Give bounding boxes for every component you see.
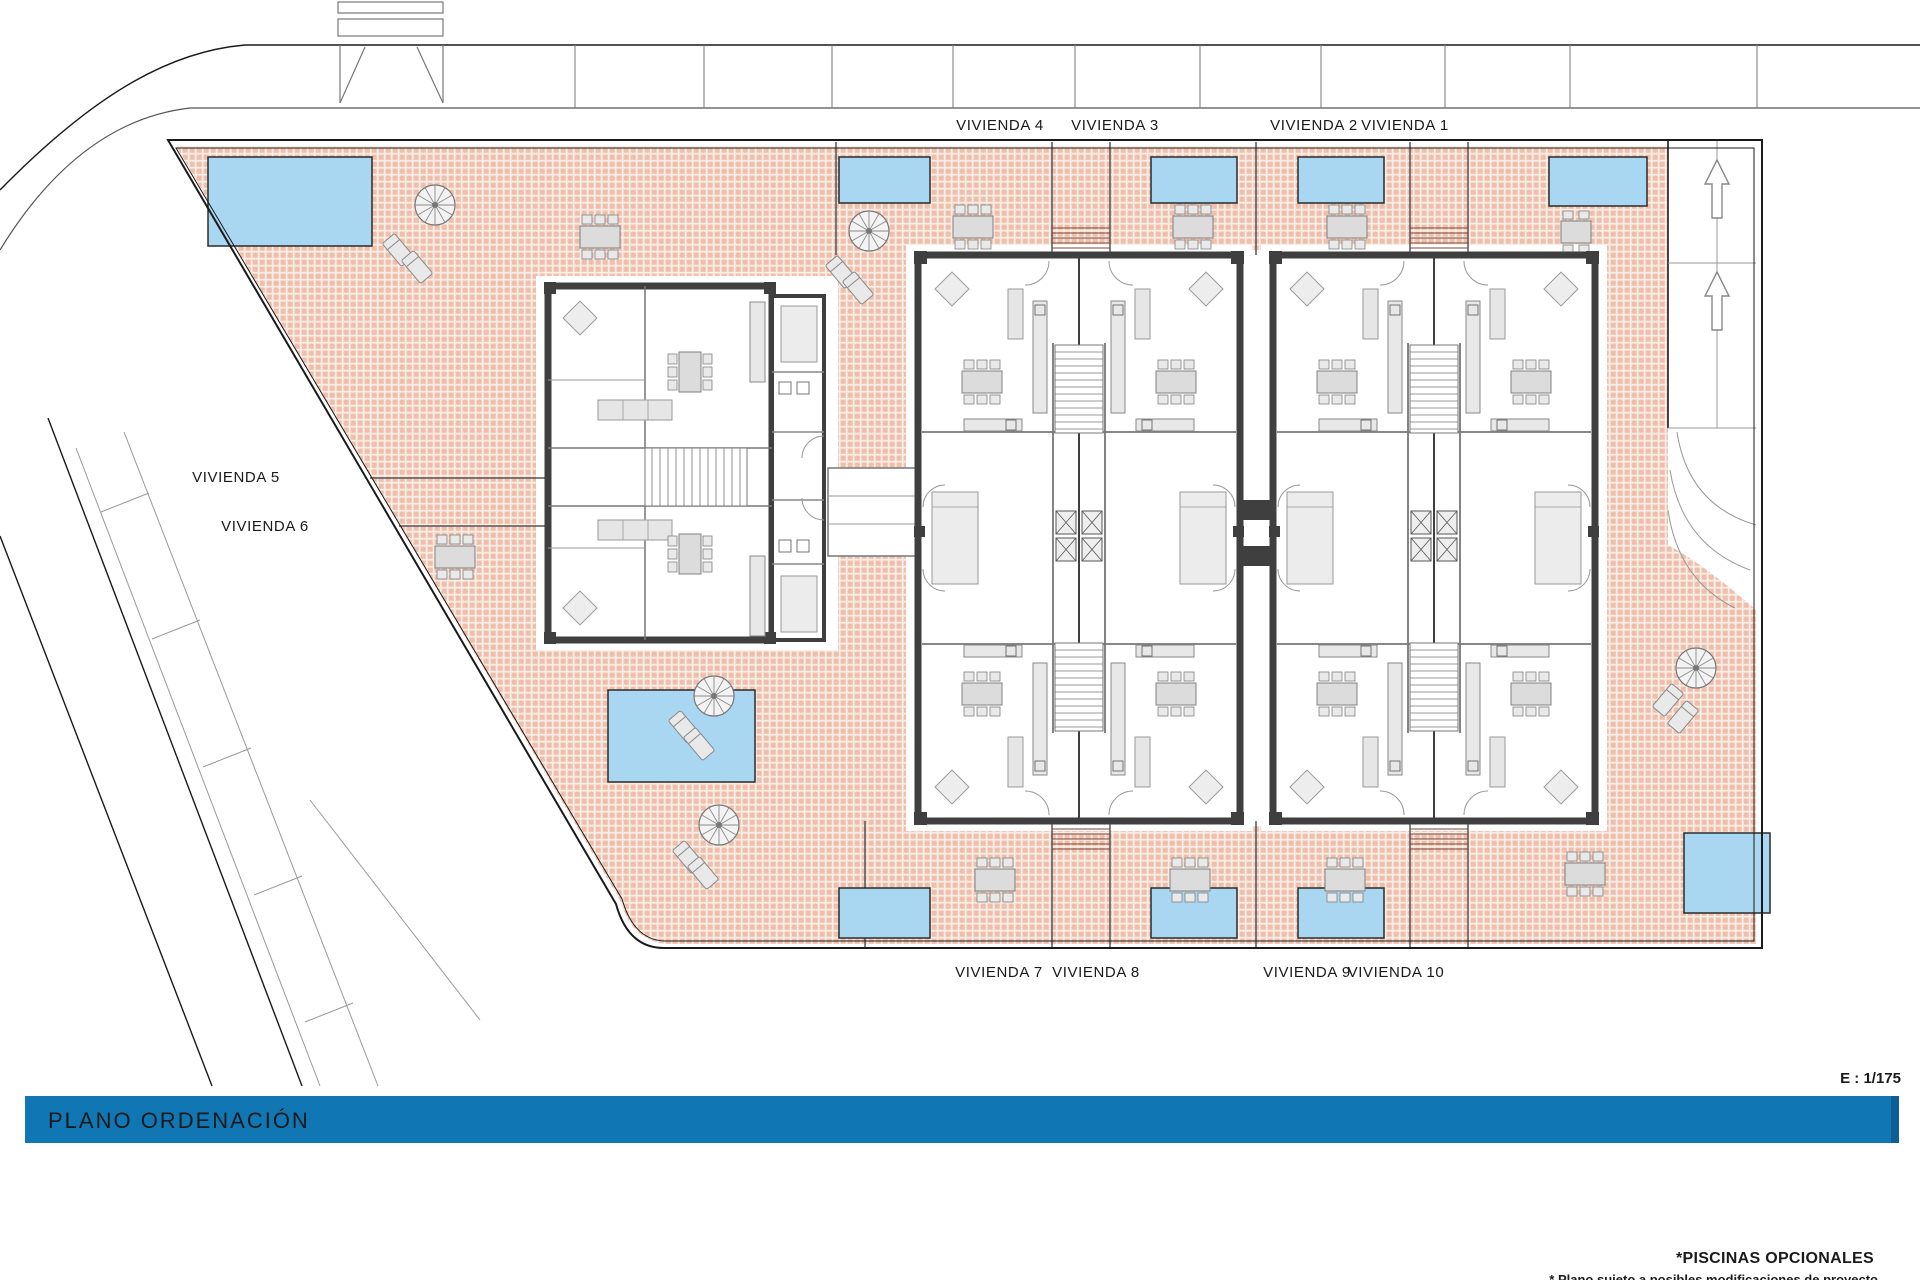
spiral-stair-icon [699, 805, 739, 845]
label-vivienda-10: VIVIENDA 10 [1348, 964, 1445, 981]
title-banner: PLANO ORDENACIÓN [25, 1096, 1899, 1143]
building-viviendas-4-3-7-8 [914, 251, 1244, 825]
dining-table-icon [1565, 852, 1605, 896]
site-plan-drawing: VIVIENDA 4 VIVIENDA 3 VIVIENDA 2 VIVIEND… [0, 0, 1920, 1280]
pool [1298, 157, 1384, 203]
label-vivienda-1: VIVIENDA 1 [1361, 117, 1449, 134]
label-vivienda-2: VIVIENDA 2 [1270, 117, 1358, 134]
label-vivienda-5: VIVIENDA 5 [192, 469, 280, 486]
note-modificaciones: * Plano sujeto a posibles modificaciones… [1549, 1272, 1878, 1280]
pool [1684, 833, 1770, 913]
spiral-stair-icon [849, 211, 889, 251]
scale-label: E : 1/175 [1840, 1070, 1901, 1087]
dining-table-icon [1327, 205, 1367, 249]
label-vivienda-4: VIVIENDA 4 [956, 117, 1044, 134]
spiral-stair-icon [1676, 648, 1716, 688]
dining-table-icon [1170, 858, 1210, 902]
plan-title: PLANO ORDENACIÓN [48, 1108, 310, 1133]
pool [1151, 157, 1237, 203]
note-piscinas-opcionales: *PISCINAS OPCIONALES [1676, 1250, 1874, 1267]
pool [208, 157, 372, 246]
pool [839, 888, 930, 938]
building-viviendas-2-1-9-10 [1269, 251, 1599, 825]
label-vivienda-3: VIVIENDA 3 [1071, 117, 1159, 134]
pool [839, 157, 930, 203]
label-vivienda-9: VIVIENDA 9 [1263, 964, 1351, 981]
site-plan-page: VIVIENDA 4 VIVIENDA 3 VIVIENDA 2 VIVIEND… [0, 0, 1920, 1280]
label-vivienda-8: VIVIENDA 8 [1052, 964, 1140, 981]
pool [1549, 157, 1647, 206]
spiral-stair-icon [694, 676, 734, 716]
dining-table-icon [1325, 858, 1365, 902]
dining-table-icon [1173, 205, 1213, 249]
dining-table-icon [580, 215, 620, 259]
dining-table-icon [953, 205, 993, 249]
dining-table-icon [975, 858, 1015, 902]
dining-table-icon [435, 535, 475, 579]
spiral-stair-icon [415, 185, 455, 225]
label-vivienda-7: VIVIENDA 7 [955, 964, 1043, 981]
label-vivienda-6: VIVIENDA 6 [221, 518, 309, 535]
